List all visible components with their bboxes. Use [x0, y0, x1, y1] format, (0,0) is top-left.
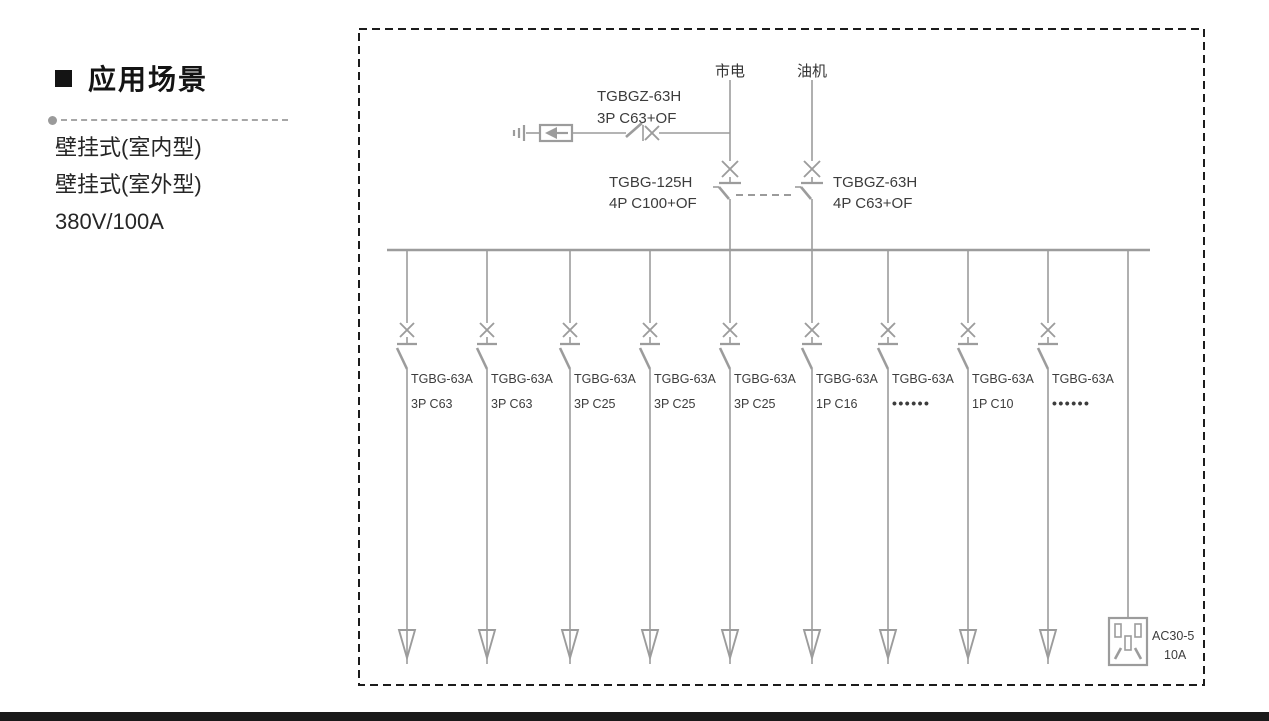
separator-dot-icon	[48, 116, 57, 125]
application-scenario-panel: 应用场景 壁挂式(室内型) 壁挂式(室外型) 380V/100A	[55, 58, 335, 247]
branch-breaker-icon	[560, 250, 580, 664]
generator-breaker-spec: 4P C63+OF	[833, 195, 912, 212]
mains-breaker-spec: 4P C100+OF	[609, 195, 697, 212]
branch-breaker-icon	[958, 250, 978, 664]
scenario-item: 380V/100A	[55, 210, 335, 234]
section-header: 应用场景	[55, 58, 335, 98]
scenario-item: 壁挂式(室内型)	[55, 136, 335, 160]
generator-source-label: 油机	[797, 63, 827, 80]
branch-spec: 3P C25	[734, 397, 776, 411]
branch-spec: 1P C10	[972, 397, 1014, 411]
branch-breaker-icon	[720, 250, 740, 664]
branch-circuit: TGBG-63A 3P C63	[477, 250, 553, 664]
branch-circuit: TGBG-63A 3P C25	[560, 250, 636, 664]
socket-rating: 10A	[1164, 648, 1187, 662]
branch-breaker-icon	[802, 250, 822, 664]
diagram-border	[359, 29, 1204, 685]
branch-circuit: TGBG-63A 1P C16	[802, 250, 878, 664]
branch-spec: ••••••	[1052, 395, 1090, 411]
branch-spec: 3P C63	[411, 397, 453, 411]
socket-icon	[1109, 618, 1147, 665]
branch-model: TGBG-63A	[734, 372, 796, 386]
spd-breaker-model: TGBGZ-63H	[597, 88, 681, 105]
branch-model: TGBG-63A	[1052, 372, 1114, 386]
surge-protector-icon	[540, 125, 572, 141]
branch-circuit: TGBG-63A 3P C63	[397, 250, 473, 664]
generator-feed-switch-icon	[795, 80, 823, 250]
branch-breaker-icon	[397, 250, 417, 664]
socket-model: AC30-5	[1152, 629, 1194, 643]
branch-breaker-icon	[640, 250, 660, 664]
separator-line	[61, 119, 288, 121]
bottom-bar	[0, 712, 1269, 721]
dashed-separator	[48, 116, 288, 126]
branch-model: TGBG-63A	[411, 372, 473, 386]
branch-model: TGBG-63A	[972, 372, 1034, 386]
generator-breaker-model: TGBGZ-63H	[833, 174, 917, 191]
mains-feed-switch-icon	[713, 80, 741, 250]
branch-model: TGBG-63A	[654, 372, 716, 386]
page: 应用场景 壁挂式(室内型) 壁挂式(室外型) 380V/100A	[0, 0, 1269, 721]
diagram-canvas: 市电 油机	[358, 28, 1205, 686]
mains-source-label: 市电	[715, 63, 745, 80]
branch-spec: 3P C25	[574, 397, 616, 411]
mains-breaker-model: TGBG-125H	[609, 174, 692, 191]
branch-circuit: TGBG-63A 3P C25	[720, 250, 796, 664]
single-line-diagram: 市电 油机	[358, 28, 1205, 686]
scenario-item: 壁挂式(室外型)	[55, 173, 335, 197]
square-bullet-icon	[55, 70, 72, 87]
branch-circuit: TGBG-63A 3P C25	[640, 250, 716, 664]
branch-breaker-icon	[878, 250, 898, 664]
mains-breaker-label: TGBG-125H 4P C100+OF	[609, 174, 697, 212]
generator-breaker-label: TGBGZ-63H 4P C63+OF	[833, 174, 917, 212]
branch-circuit: TGBG-63A ••••••	[1038, 250, 1114, 664]
section-title: 应用场景	[88, 58, 208, 98]
branch-circuit: TGBG-63A 1P C10	[958, 250, 1034, 664]
branch-spec: 3P C25	[654, 397, 696, 411]
branch-spec: ••••••	[892, 395, 930, 411]
branch-model: TGBG-63A	[816, 372, 878, 386]
branch-model: TGBG-63A	[892, 372, 954, 386]
branch-breaker-icon	[477, 250, 497, 664]
branch-spec: 1P C16	[816, 397, 858, 411]
branch-circuit: TGBG-63A ••••••	[878, 250, 954, 664]
spd-breaker-spec: 3P C63+OF	[597, 110, 676, 127]
branch-model: TGBG-63A	[574, 372, 636, 386]
ground-icon	[514, 125, 524, 141]
branch-model: TGBG-63A	[491, 372, 553, 386]
branch-spec: 3P C63	[491, 397, 533, 411]
spd-breaker-label: TGBGZ-63H 3P C63+OF	[597, 88, 681, 127]
branch-breaker-icon	[1038, 250, 1058, 664]
socket-branch: AC30-5 10A	[1109, 250, 1194, 665]
